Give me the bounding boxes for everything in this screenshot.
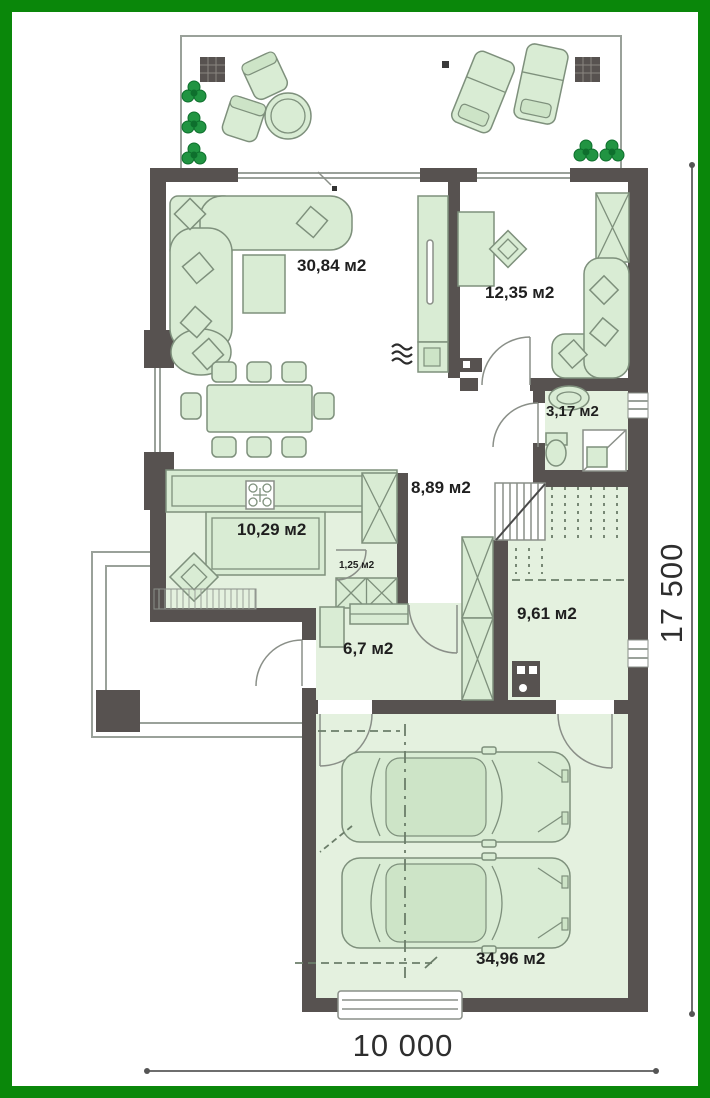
- terrace-dot: [442, 61, 449, 68]
- desk-chair: [490, 231, 527, 268]
- dimension-dot: [689, 1011, 695, 1017]
- dimension-line-horizontal: [147, 1070, 657, 1072]
- terrace-pillar: [575, 57, 600, 82]
- hall-closet: [462, 537, 493, 700]
- car: [342, 747, 570, 847]
- sun-lounger: [449, 49, 516, 135]
- pantry-storage: [336, 550, 397, 608]
- shower: [583, 430, 626, 471]
- radiator-bench: [154, 589, 256, 609]
- living-room-furniture: [170, 196, 448, 457]
- plan-graphics: [0, 0, 710, 1098]
- terrace-pillar: [200, 57, 225, 82]
- bathroom-fixtures: [546, 386, 626, 471]
- entrance-door-arc: [256, 640, 302, 686]
- entry-cabinet: [320, 607, 344, 647]
- dimension-dot: [653, 1068, 659, 1074]
- dining-table: [207, 385, 312, 432]
- bathroom-window: [628, 393, 648, 418]
- bedroom-window: [477, 168, 570, 182]
- garage-door: [338, 991, 462, 1019]
- sun-lounger: [513, 42, 570, 125]
- bedroom-door-arc: [482, 337, 530, 385]
- terrace-chair: [220, 95, 267, 144]
- bathroom-door-arc: [493, 403, 538, 447]
- dimension-dot: [144, 1068, 150, 1074]
- wall-fixture: [458, 358, 482, 372]
- label-entry-hall: 6,7 м2: [343, 639, 393, 659]
- terrace-sliding-door: [238, 168, 420, 182]
- label-kitchen: 10,29 м2: [237, 520, 306, 540]
- terrace-round-table: [265, 93, 311, 139]
- floor-plan-page: 30,84 м2 12,35 м2 3,17 м2 8,89 м2 10,29 …: [0, 0, 710, 1098]
- staircase: [495, 483, 627, 580]
- car: [342, 853, 570, 953]
- bush: [182, 81, 206, 102]
- dining-set: [181, 362, 334, 457]
- label-garage: 34,96 м2: [476, 949, 545, 969]
- dimension-width: 10 000: [335, 1028, 471, 1064]
- boiler: [512, 661, 540, 697]
- label-living-room: 30,84 м2: [297, 256, 366, 276]
- label-utility-room: 9,61 м2: [517, 604, 577, 624]
- bush: [182, 143, 206, 164]
- bush: [182, 112, 206, 133]
- coffee-table: [243, 255, 285, 313]
- hall-door-arc: [409, 605, 457, 653]
- wardrobe: [596, 193, 629, 262]
- utility-window: [628, 640, 648, 667]
- fireplace: [392, 342, 448, 372]
- label-bathroom: 3,17 м2: [546, 403, 599, 420]
- label-bedroom: 12,35 м2: [485, 283, 554, 303]
- tall-unit: [362, 473, 397, 543]
- stove: [246, 481, 274, 509]
- garage-items: [295, 724, 570, 978]
- label-hall: 8,89 м2: [411, 478, 471, 498]
- dimension-line-vertical: [691, 165, 693, 1015]
- dimension-dot: [689, 162, 695, 168]
- bed: [552, 258, 629, 378]
- terrace-items: [182, 42, 624, 164]
- bush: [574, 140, 598, 161]
- tv-cabinet: [418, 196, 448, 342]
- dimension-depth: 17 500: [654, 528, 690, 658]
- bush: [600, 140, 624, 161]
- toilet: [546, 433, 567, 466]
- living-window: [150, 368, 166, 452]
- label-pantry: 1,25 м2: [339, 560, 374, 571]
